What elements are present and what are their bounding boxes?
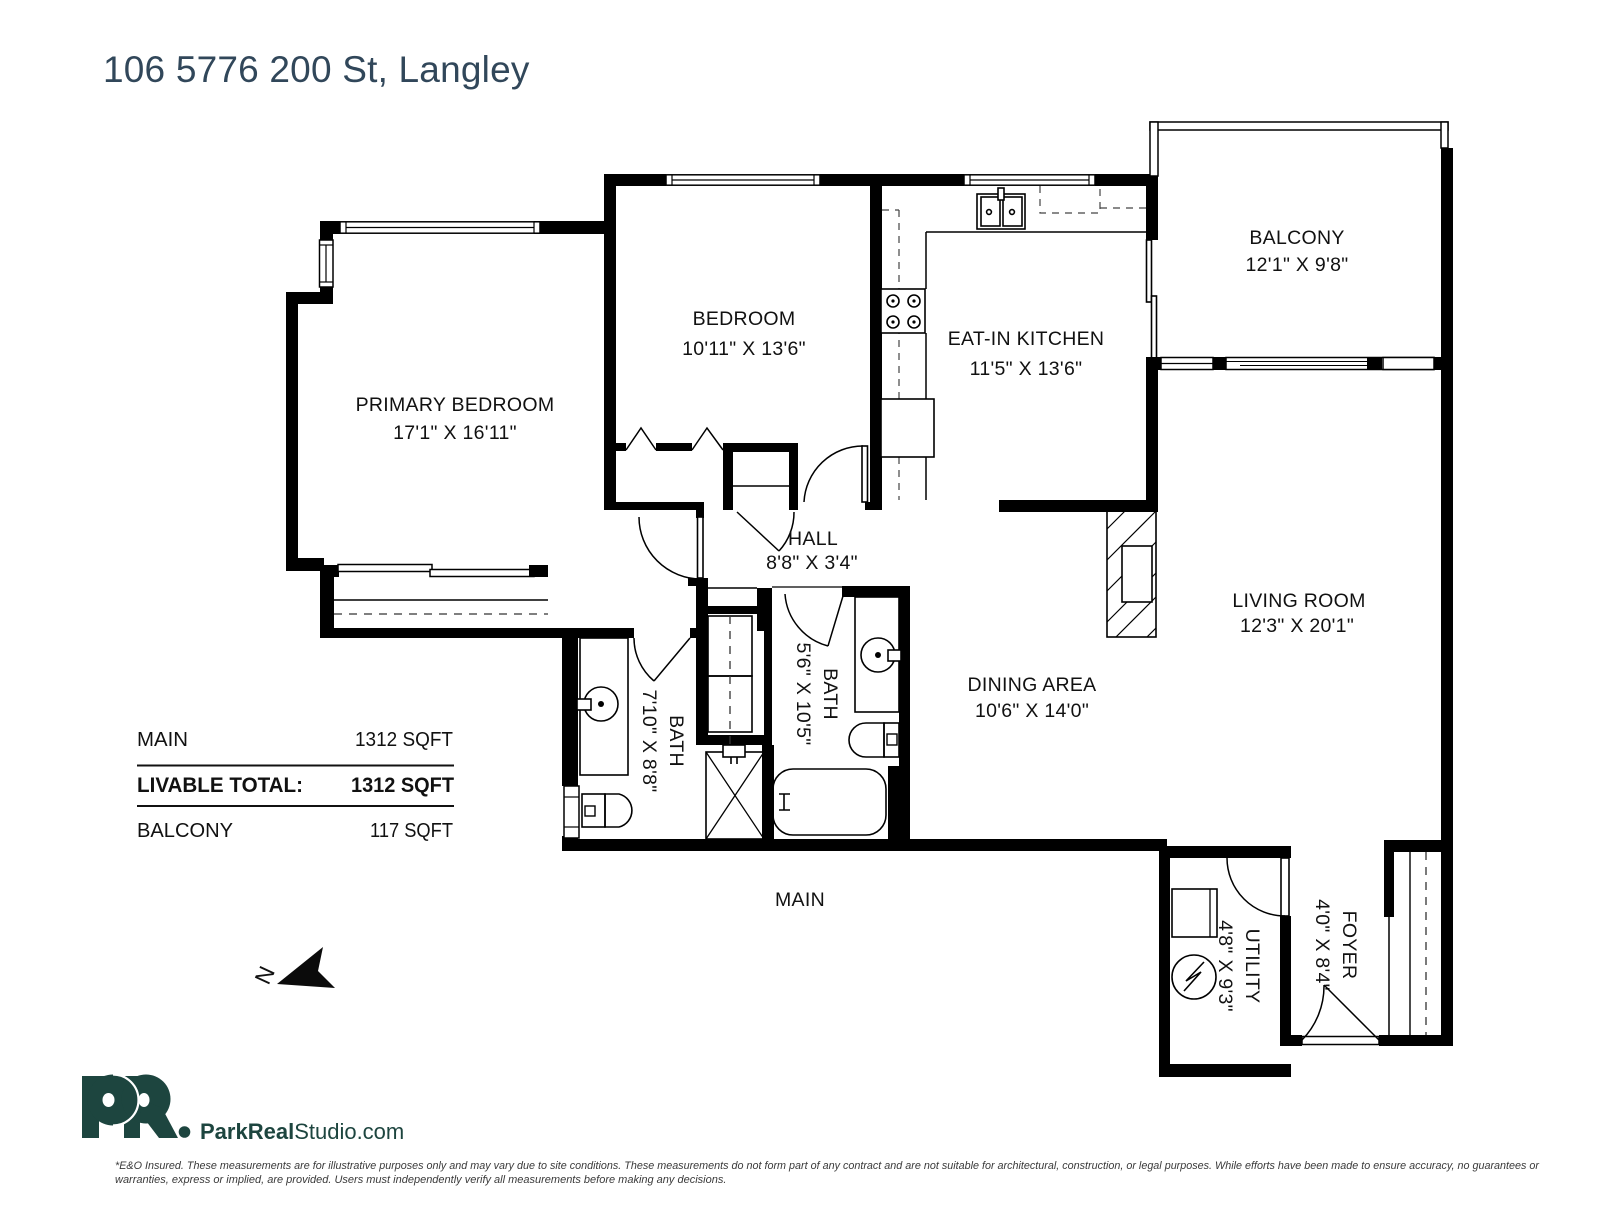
svg-text:LIVING ROOM: LIVING ROOM	[1232, 590, 1365, 612]
svg-text:1312 SQFT: 1312 SQFT	[355, 729, 453, 751]
svg-text:HALL: HALL	[788, 528, 838, 550]
svg-text:10'11" X 13'6": 10'11" X 13'6"	[682, 338, 806, 360]
svg-text:UTILITY: UTILITY	[1241, 929, 1263, 1004]
svg-text:17'1" X 16'11": 17'1" X 16'11"	[393, 422, 517, 444]
svg-text:MAIN: MAIN	[775, 889, 825, 911]
svg-text:LIVABLE TOTAL:: LIVABLE TOTAL:	[137, 774, 303, 797]
svg-text:BATH: BATH	[665, 715, 687, 767]
svg-text:5'6" X 10'5": 5'6" X 10'5"	[792, 643, 814, 746]
svg-text:PRIMARY BEDROOM: PRIMARY BEDROOM	[356, 394, 555, 416]
svg-text:4'0" X 8'4": 4'0" X 8'4"	[1311, 899, 1333, 991]
svg-text:1312 SQFT: 1312 SQFT	[351, 774, 454, 797]
svg-text:MAIN: MAIN	[137, 729, 188, 751]
svg-text:BEDROOM: BEDROOM	[693, 308, 796, 330]
svg-text:EAT-IN KITCHEN: EAT-IN KITCHEN	[948, 328, 1105, 350]
svg-text:12'1" X 9'8": 12'1" X 9'8"	[1246, 254, 1349, 276]
svg-text:7'10" X 8'8": 7'10" X 8'8"	[638, 690, 660, 793]
svg-text:*E&O Insured. These measuremen: *E&O Insured. These measurements are for…	[115, 1160, 1540, 1172]
svg-text:10'6" X 14'0": 10'6" X 14'0"	[975, 700, 1089, 722]
svg-text:ParkRealStudio.com: ParkRealStudio.com	[200, 1119, 404, 1144]
svg-text:12'3" X 20'1": 12'3" X 20'1"	[1240, 615, 1354, 637]
svg-text:BATH: BATH	[819, 668, 841, 720]
svg-text:BALCONY: BALCONY	[137, 820, 233, 842]
svg-text:8'8" X 3'4": 8'8" X 3'4"	[766, 552, 858, 574]
svg-text:DINING AREA: DINING AREA	[968, 674, 1097, 696]
svg-text:117 SQFT: 117 SQFT	[370, 820, 453, 842]
svg-text:FOYER: FOYER	[1338, 911, 1360, 980]
svg-text:warranties, express or implied: warranties, express or implied, are prov…	[115, 1174, 726, 1186]
svg-text:BALCONY: BALCONY	[1249, 227, 1344, 249]
svg-text:11'5" X 13'6": 11'5" X 13'6"	[970, 358, 1083, 380]
svg-text:106 5776 200 St, Langley: 106 5776 200 St, Langley	[103, 49, 530, 90]
